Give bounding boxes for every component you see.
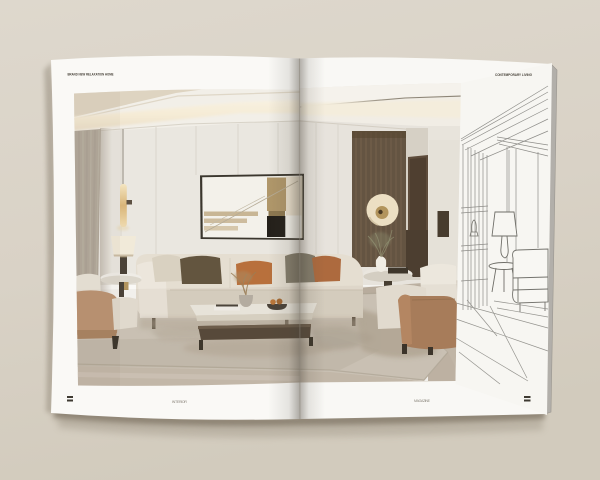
svg-text:INTERIOR: INTERIOR <box>172 400 187 404</box>
svg-text:MAGAZINE: MAGAZINE <box>414 399 431 403</box>
svg-text:CONTEMPORARY LIVING: CONTEMPORARY LIVING <box>495 72 532 77</box>
svg-text:BRAND NEW RELAXATION HOME: BRAND NEW RELAXATION HOME <box>68 72 114 77</box>
